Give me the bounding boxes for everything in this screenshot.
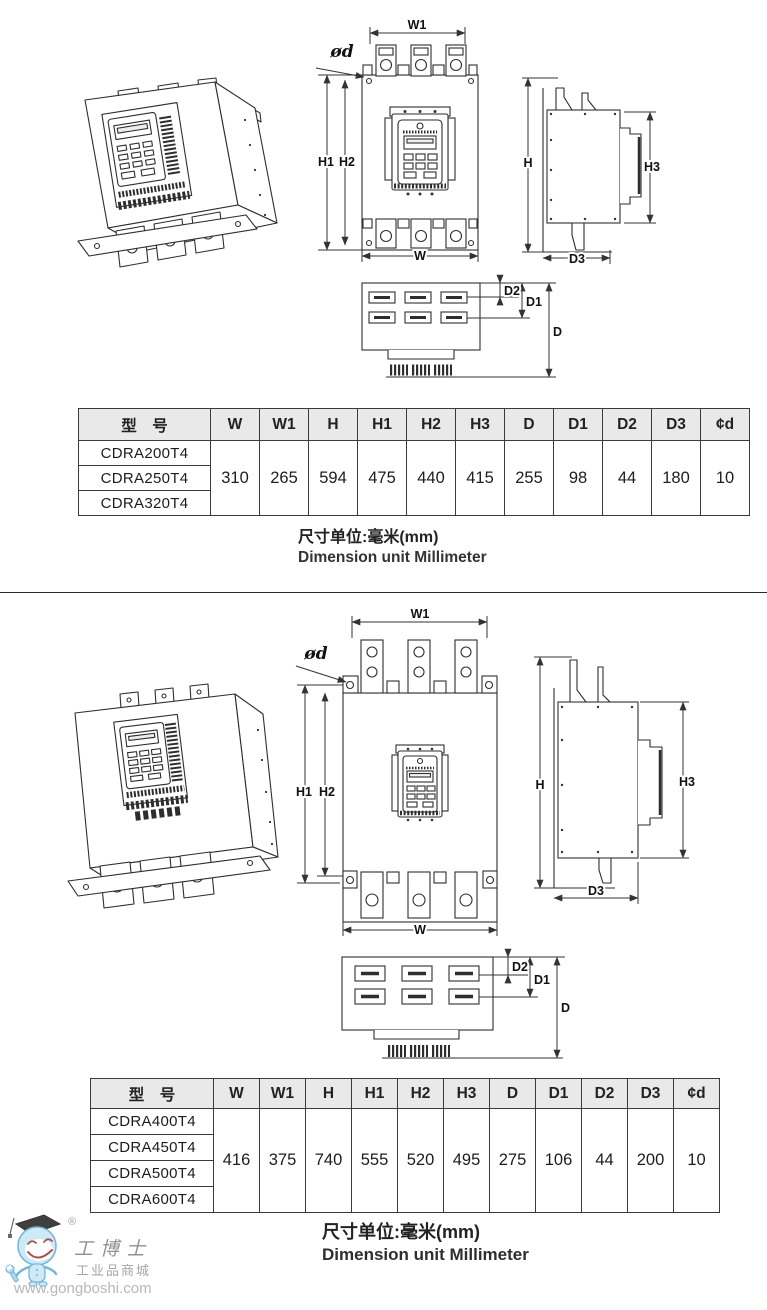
col-header: H2	[407, 409, 456, 441]
value-cell: 475	[358, 441, 407, 516]
dim-label-w1: W1	[411, 607, 430, 621]
col-header: H	[309, 409, 358, 441]
isometric-view-1	[78, 78, 277, 267]
value-cell: 106	[536, 1109, 582, 1213]
side-view-2: H H3 D3	[534, 657, 695, 904]
dim-label-h3: H3	[679, 775, 695, 789]
dim-label-w1: W1	[408, 18, 427, 32]
col-header: ¢d	[701, 409, 750, 441]
model-cell: CDRA450T4	[91, 1135, 214, 1161]
col-header: D	[505, 409, 554, 441]
model-cell: CDRA600T4	[91, 1187, 214, 1213]
drawing-section-1: W1 ød H1 H2 W	[0, 0, 767, 400]
table-header-row: 型 号 W W1 H H1 H2 H3 D D1 D2 D3 ¢d	[91, 1079, 720, 1109]
col-header: H	[306, 1079, 352, 1109]
dim-label-d1: D1	[526, 295, 542, 309]
dim-label-d1: D1	[534, 973, 550, 987]
dim-label-h1: H1	[318, 155, 334, 169]
unit-note-cn: 尺寸单位:毫米(mm)	[298, 528, 487, 548]
isometric-view-2	[68, 684, 278, 908]
col-header-model: 型 号	[79, 409, 211, 441]
unit-note-cn: 尺寸单位:毫米(mm)	[322, 1221, 529, 1244]
value-cell: 255	[505, 441, 554, 516]
keypad-unit	[102, 103, 192, 208]
value-cell: 594	[309, 441, 358, 516]
table-row: CDRA400T4 416 375 740 555 520 495 275 10…	[91, 1109, 720, 1135]
watermark-brand: 工博士	[74, 1234, 152, 1261]
unit-note-en: Dimension unit Millimeter	[322, 1244, 529, 1265]
col-header: ¢d	[674, 1079, 720, 1109]
dim-label-d2: D2	[504, 284, 520, 298]
col-header: D3	[652, 409, 701, 441]
col-header: H1	[358, 409, 407, 441]
dim-label-h3: H3	[644, 160, 660, 174]
col-header: D2	[603, 409, 652, 441]
value-cell: 98	[554, 441, 603, 516]
col-header: W1	[260, 1079, 306, 1109]
keypad-unit	[114, 714, 189, 817]
col-header: W1	[260, 409, 309, 441]
value-cell: 520	[398, 1109, 444, 1213]
value-cell: 200	[628, 1109, 674, 1213]
drawing-section-2: W1 ød H1 H2 W	[0, 600, 767, 1075]
dim-label-w: W	[414, 923, 426, 937]
value-cell: 310	[211, 441, 260, 516]
model-cell: CDRA320T4	[79, 491, 211, 516]
dim-label-d: D	[553, 325, 562, 339]
value-cell: 740	[306, 1109, 352, 1213]
table-row: CDRA200T4 310 265 594 475 440 415 255 98…	[79, 441, 750, 466]
col-header: D3	[628, 1079, 674, 1109]
col-header: H3	[444, 1079, 490, 1109]
col-header: D	[490, 1079, 536, 1109]
value-cell: 10	[701, 441, 750, 516]
value-cell: 416	[214, 1109, 260, 1213]
section-divider	[0, 592, 767, 593]
col-header: H3	[456, 409, 505, 441]
col-header-model: 型 号	[91, 1079, 214, 1109]
col-header: H2	[398, 1079, 444, 1109]
value-cell: 495	[444, 1109, 490, 1213]
table-header-row: 型 号 W W1 H H1 H2 H3 D D1 D2 D3 ¢d	[79, 409, 750, 441]
col-header: W	[214, 1079, 260, 1109]
watermark-subtitle: 工业品商城	[76, 1260, 151, 1279]
registered-mark: ®	[68, 1216, 76, 1228]
unit-note-1: 尺寸单位:毫米(mm) Dimension unit Millimeter	[298, 528, 487, 567]
col-header: D2	[582, 1079, 628, 1109]
col-header: D1	[554, 409, 603, 441]
dim-label-d3: D3	[588, 884, 604, 898]
value-cell: 180	[652, 441, 701, 516]
dim-label-d2: D2	[512, 960, 528, 974]
model-cell: CDRA500T4	[91, 1161, 214, 1187]
col-header: D1	[536, 1079, 582, 1109]
bottom-view-1: D2 D1 D	[362, 275, 562, 377]
value-cell: 265	[260, 441, 309, 516]
dim-label-d: D	[561, 1001, 570, 1015]
mascot-icon	[4, 1210, 76, 1288]
dim-label-phid: ød	[329, 42, 353, 62]
side-view-1: H H3 D3	[522, 78, 660, 266]
watermark-logo: ® 工博士 工业品商城 www.gongboshi.com	[4, 1210, 194, 1310]
dimension-table-2: 型 号 W W1 H H1 H2 H3 D D1 D2 D3 ¢d CDRA40…	[90, 1078, 720, 1213]
dim-label-h1: H1	[296, 785, 312, 799]
model-cell: CDRA250T4	[79, 466, 211, 491]
watermark-url: www.gongboshi.com	[14, 1280, 152, 1297]
value-cell: 415	[456, 441, 505, 516]
value-cell: 10	[674, 1109, 720, 1213]
value-cell: 275	[490, 1109, 536, 1213]
unit-note-en: Dimension unit Millimeter	[298, 548, 487, 567]
front-view-1: W1 ød H1 H2 W	[316, 18, 478, 263]
dim-label-h: H	[523, 156, 532, 170]
page: W1 ød H1 H2 W	[0, 0, 767, 1310]
value-cell: 440	[407, 441, 456, 516]
dim-label-phid: ød	[303, 644, 327, 664]
model-cell: CDRA400T4	[91, 1109, 214, 1135]
front-view-2: W1 ød H1 H2 W	[296, 607, 497, 937]
value-cell: 44	[582, 1109, 628, 1213]
dimension-table-1: 型 号 W W1 H H1 H2 H3 D D1 D2 D3 ¢d CDRA20…	[78, 408, 750, 516]
value-cell: 555	[352, 1109, 398, 1213]
dim-label-h2: H2	[319, 785, 335, 799]
unit-note-2: 尺寸单位:毫米(mm) Dimension unit Millimeter	[322, 1221, 529, 1265]
col-header: H1	[352, 1079, 398, 1109]
bottom-view-2: D2 D1 D	[342, 949, 570, 1058]
dim-label-w: W	[414, 249, 426, 263]
value-cell: 375	[260, 1109, 306, 1213]
dim-label-h: H	[535, 778, 544, 792]
dim-label-h2: H2	[339, 155, 355, 169]
model-cell: CDRA200T4	[79, 441, 211, 466]
value-cell: 44	[603, 441, 652, 516]
col-header: W	[211, 409, 260, 441]
dim-label-d3: D3	[569, 252, 585, 266]
